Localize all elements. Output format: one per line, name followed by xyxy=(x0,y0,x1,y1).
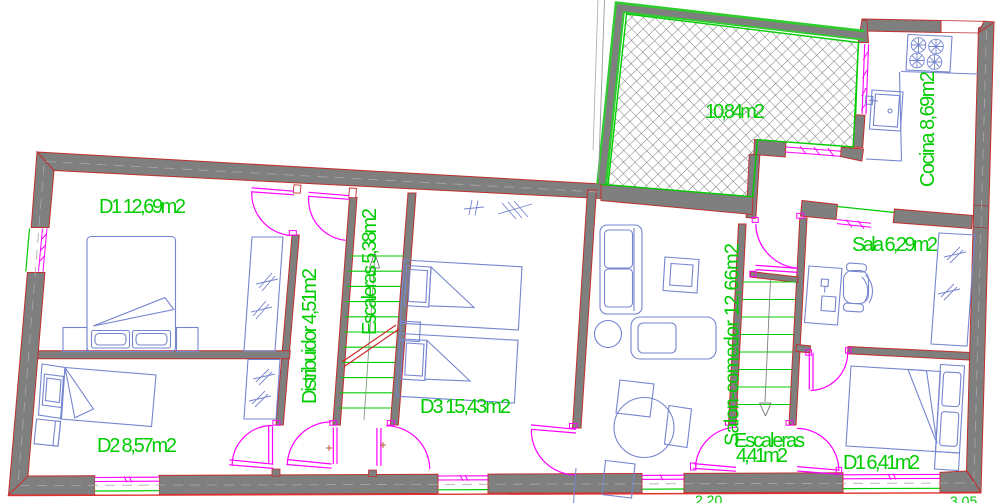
svg-text:4,41m2: 4,41m2 xyxy=(736,445,788,467)
svg-text:Sala 6,29m2: Sala 6,29m2 xyxy=(852,234,938,256)
svg-text:3,05: 3,05 xyxy=(950,493,977,503)
svg-text:D2 8,57m2: D2 8,57m2 xyxy=(97,435,177,457)
svg-text:Cocina 8,69m2: Cocina 8,69m2 xyxy=(917,71,939,187)
svg-text:10,84m2: 10,84m2 xyxy=(705,101,765,123)
svg-text:D1 6,41m2: D1 6,41m2 xyxy=(843,452,920,474)
svg-text:2,20: 2,20 xyxy=(695,492,722,503)
svg-text:Escaleras 5,38m2: Escaleras 5,38m2 xyxy=(359,208,381,335)
svg-text:D1 12,69m2: D1 12,69m2 xyxy=(99,196,186,218)
svg-text:Distribuidor 4,51m2: Distribuidor 4,51m2 xyxy=(299,268,321,404)
svg-text:D3 15,43m2: D3 15,43m2 xyxy=(420,396,511,418)
svg-text:Salon-comedor 12,66m2: Salon-comedor 12,66m2 xyxy=(722,243,744,446)
